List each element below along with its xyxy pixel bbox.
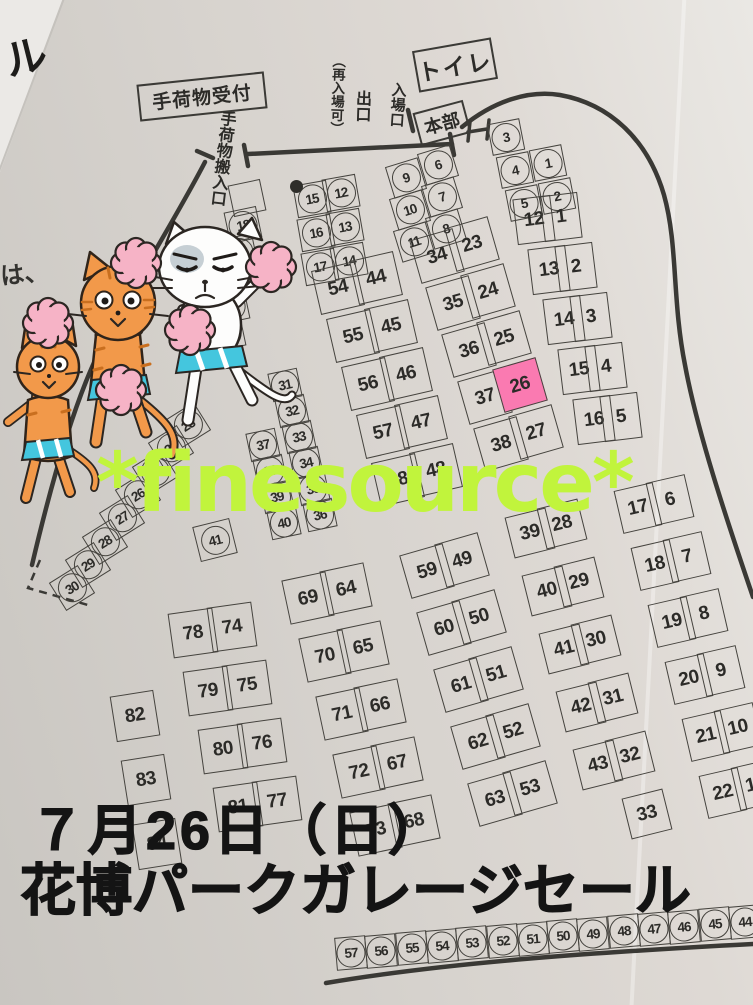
booth-number: 55 (396, 932, 427, 963)
booth-cell: 65 (336, 620, 389, 673)
booth-number: 42 (569, 694, 594, 720)
booth-number: 46 (394, 361, 419, 387)
booth-number: 30 (584, 627, 609, 653)
booth-number: 50 (466, 604, 491, 631)
event-title-text: 花博パークガレージセール (20, 846, 691, 927)
booth-number: 53 (456, 928, 487, 959)
booth-number: 1 (531, 146, 565, 180)
booth-cell: 4 (496, 151, 534, 189)
booth-number: 2 (570, 255, 583, 278)
pom-pom-icon (246, 242, 296, 292)
booth-number: 9 (714, 659, 729, 683)
booth-cell: 45 (364, 299, 418, 353)
booth-number: 35 (440, 290, 465, 317)
booth-cell: 44 (349, 251, 403, 305)
booth-cell: 76 (237, 718, 288, 769)
booth-number: 23 (459, 231, 484, 258)
booth-number: 25 (491, 325, 516, 352)
booth-cell: 74 (207, 602, 258, 653)
reentry-note-label: （再入場可） (328, 54, 345, 135)
booth-number: 52 (500, 718, 525, 745)
booth-number: 51 (517, 923, 548, 954)
booth-number: 65 (351, 634, 375, 660)
booth-number: 59 (414, 558, 439, 585)
booth-number: 32 (618, 743, 643, 769)
booth-number: 52 (487, 925, 518, 956)
pom-pom-icon (111, 238, 161, 288)
booth-number: 76 (250, 731, 273, 756)
watermark-text: *finesource* (96, 436, 632, 531)
booth-number: 43 (586, 752, 611, 778)
pom-pom-icon (165, 305, 215, 355)
booth-cell: 44 (728, 904, 753, 940)
booth-number: 45 (699, 908, 730, 939)
booth-number: 19 (660, 609, 685, 635)
booth-number: 67 (385, 750, 409, 776)
booth-number: 40 (535, 578, 560, 604)
booth-cell: 1 (529, 144, 567, 182)
booth-number: 41 (552, 636, 577, 662)
booth-number: 54 (426, 930, 457, 961)
booth-number: 6 (663, 488, 678, 512)
booth-number: 33 (635, 801, 660, 827)
booth-number: 4 (600, 355, 613, 378)
booth-number: 56 (356, 371, 381, 397)
exit-label: 出口 (351, 90, 369, 123)
booth-number: 21 (694, 723, 719, 749)
booth-number: 3 (489, 120, 523, 154)
booth-cell: 8 (680, 588, 729, 640)
booth-number: 82 (123, 704, 146, 729)
booth-number: 3 (585, 305, 598, 328)
booth-number: 57 (335, 937, 366, 968)
booth-number: 66 (368, 692, 392, 718)
booth-cell: 75 (222, 660, 273, 711)
booth-cell: 54 (425, 928, 459, 964)
booth-number: 45 (379, 313, 404, 339)
booth-number: 7 (680, 545, 695, 569)
booth-number: 5 (615, 405, 628, 428)
booth-cell: 57 (334, 935, 368, 971)
booth-cell: 6 (646, 474, 695, 526)
booth-number: 1 (555, 205, 568, 228)
booth-cell: 67 (370, 736, 423, 789)
booth-number: 55 (341, 323, 366, 349)
booth-cell: 7 (663, 531, 712, 583)
booth-number: 51 (483, 661, 508, 688)
booth-cell: 5 (599, 392, 642, 442)
booth-number: 22 (711, 780, 736, 806)
booth-cell: 33 (622, 789, 673, 840)
entrance-label: 入場口 (387, 82, 406, 128)
booth-number: 53 (517, 775, 542, 802)
booth-number: 8 (697, 602, 712, 626)
booth-cell: 13 (325, 208, 364, 246)
booth-number: 71 (330, 701, 354, 727)
booth-number: 63 (482, 786, 507, 813)
booth-cell: 29 (554, 557, 605, 608)
booth-cell: 1 (539, 192, 582, 242)
booth-cell: 64 (319, 562, 372, 615)
booth-cell: 82 (110, 690, 161, 742)
booth-cell: 66 (353, 678, 406, 731)
pom-pom-icon (23, 298, 73, 348)
booth-number: 24 (475, 278, 500, 305)
booth-number: 44 (729, 906, 753, 937)
booth-number: 64 (334, 576, 358, 602)
booth-number: 37 (472, 384, 497, 411)
booth-number: 75 (235, 673, 258, 698)
booth-number: 47 (409, 409, 434, 435)
booth-number: 18 (643, 552, 668, 578)
booth-number: 12 (324, 176, 358, 210)
booth-number: 69 (296, 585, 320, 611)
booth-cell: 55 (395, 930, 429, 966)
booth-number: 56 (366, 935, 397, 966)
booth-cell: 3 (487, 118, 525, 156)
booth-number: 20 (677, 666, 702, 692)
booth-number: 4 (498, 153, 532, 187)
booth-cell: 9 (697, 645, 746, 697)
booth-cell: 12 (321, 174, 360, 212)
booth-number: 80 (211, 737, 234, 762)
booth-number: 11 (743, 772, 753, 798)
booth-number: 34 (424, 243, 449, 270)
booth-number: 44 (364, 265, 389, 291)
booth-cell: 56 (364, 933, 398, 969)
booth-number: 36 (456, 337, 481, 364)
map-dot-marker (290, 180, 303, 193)
pom-pom-icon (96, 365, 146, 415)
booth-number: 74 (220, 615, 243, 640)
photo-of-venue-map: 1512161317145444554556465747584896107118… (0, 0, 753, 1005)
booth-number: 62 (465, 729, 490, 756)
booth-cell: 46 (379, 347, 433, 401)
booth-cell: 32 (605, 731, 656, 782)
booth-cell: 4 (584, 342, 627, 392)
booth-cell: 31 (588, 673, 639, 724)
booth-cell: 3 (569, 292, 612, 342)
booth-number: 10 (726, 715, 751, 741)
booth-cell: 2 (554, 242, 597, 292)
booth-cell: 45 (698, 906, 732, 942)
booth-cell: 53 (455, 926, 489, 962)
booth-number: 26 (507, 372, 532, 399)
booth-number: 70 (313, 643, 337, 669)
booth-number: 61 (448, 672, 473, 699)
booth-cell: 52 (486, 923, 520, 959)
booth-number: 29 (567, 569, 592, 595)
booth-number: 31 (601, 685, 626, 711)
booth-cell: 30 (571, 615, 622, 666)
booth-number: 49 (449, 547, 474, 574)
booth-number: 60 (431, 615, 456, 642)
booth-number: 13 (328, 210, 362, 244)
booth-number: 78 (181, 621, 204, 646)
booth-number: 79 (196, 679, 219, 704)
booth-number: 72 (347, 759, 371, 785)
